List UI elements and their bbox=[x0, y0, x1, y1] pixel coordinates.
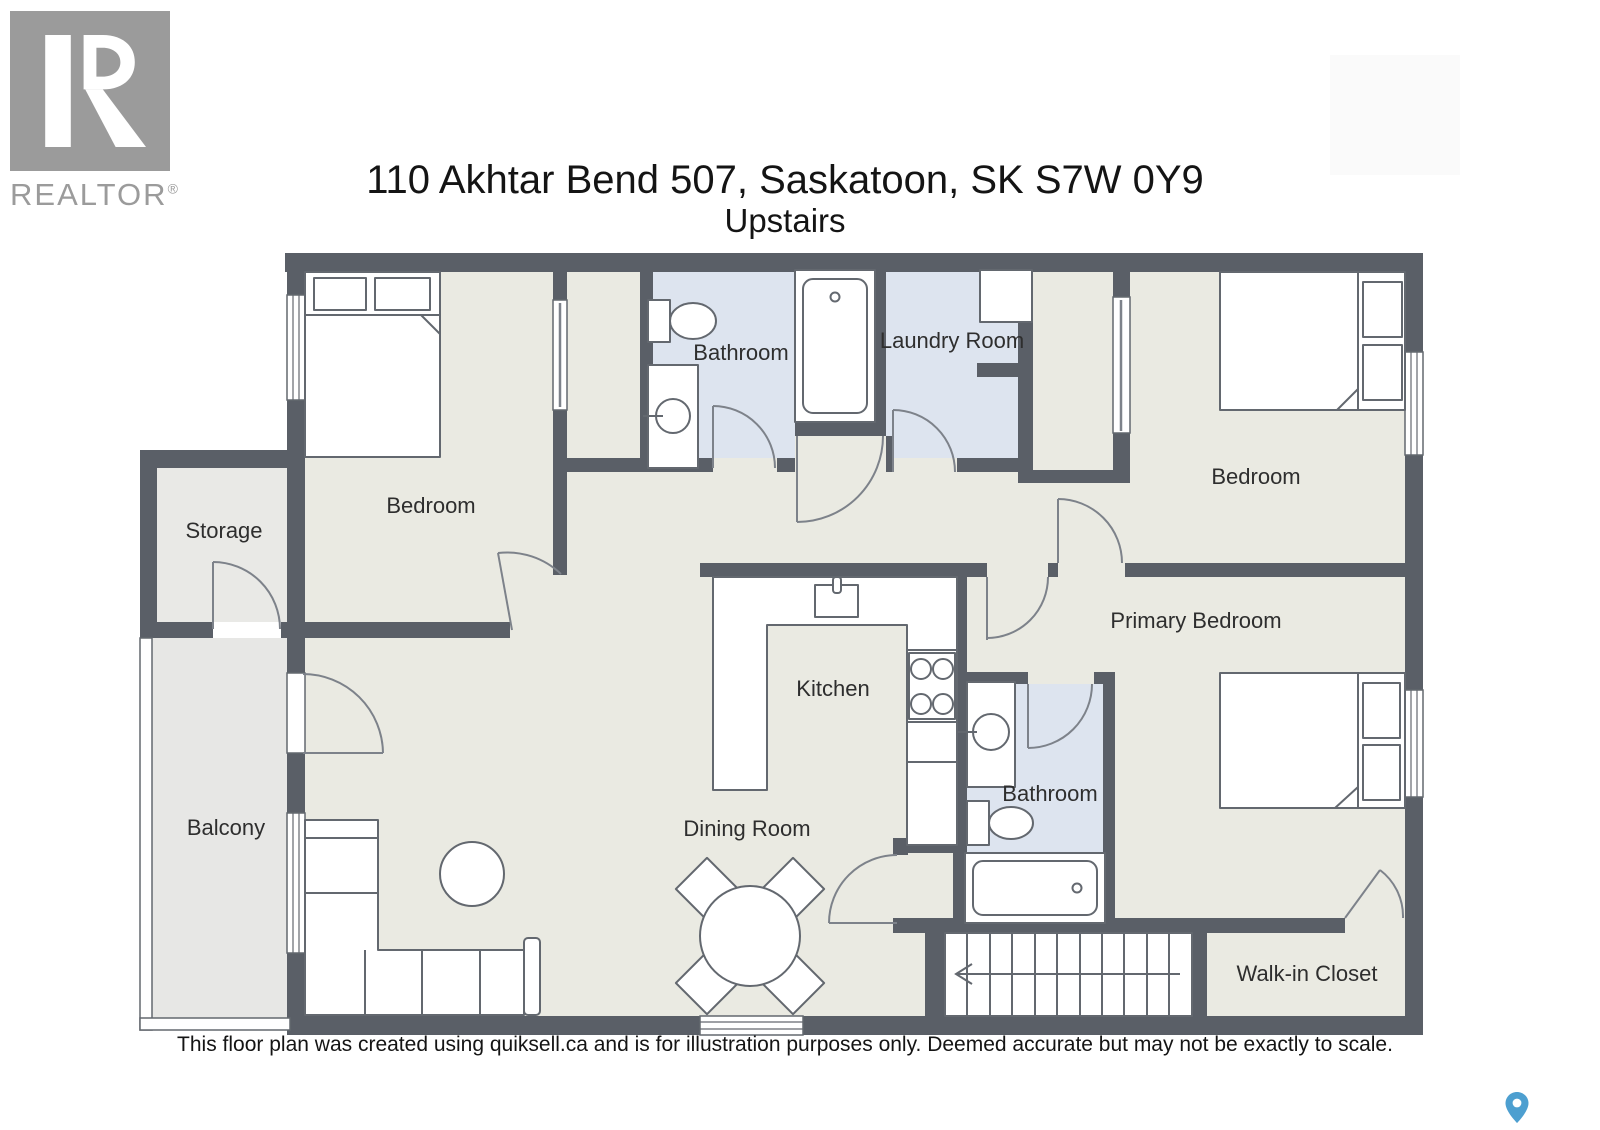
stairs bbox=[945, 933, 1192, 1016]
room-label-bathroom-2: Bathroom bbox=[1002, 781, 1097, 807]
bed bbox=[1220, 673, 1405, 808]
washer bbox=[980, 270, 1032, 322]
room-label-bedroom-2: Bedroom bbox=[1211, 464, 1300, 490]
room-label-dining-room: Dining Room bbox=[683, 816, 810, 842]
bed bbox=[1220, 272, 1405, 410]
room-label-bathroom-1: Bathroom bbox=[693, 340, 788, 366]
bathtub bbox=[795, 270, 875, 422]
stove bbox=[909, 653, 955, 719]
room-label-laundry-room: Laundry Room bbox=[880, 328, 1024, 354]
coffee-table bbox=[440, 842, 504, 906]
balcony-railing bbox=[140, 1018, 290, 1030]
room-label-balcony: Balcony bbox=[187, 815, 265, 841]
floor-plan-page: REALTOR® 110 Akhtar Bend 507, Saskatoon,… bbox=[0, 0, 1600, 1130]
room-label-bedroom-1: Bedroom bbox=[386, 493, 475, 519]
window bbox=[1405, 690, 1423, 797]
window bbox=[1405, 352, 1423, 455]
room-floor-storage bbox=[157, 468, 287, 622]
room-label-primary-bedroom: Primary Bedroom bbox=[1110, 608, 1281, 634]
balcony-railing bbox=[140, 638, 152, 1030]
map-pin-icon bbox=[1504, 1091, 1530, 1125]
bed bbox=[305, 272, 440, 457]
room-label-storage: Storage bbox=[185, 518, 262, 544]
disclaimer-text: This floor plan was created using quikse… bbox=[0, 1033, 1570, 1057]
room-label-walk-in-closet: Walk-in Closet bbox=[1237, 961, 1378, 987]
bathroom-sink bbox=[643, 365, 698, 468]
room-label-kitchen: Kitchen bbox=[796, 676, 869, 702]
toilet bbox=[648, 300, 716, 342]
bathtub bbox=[965, 853, 1105, 923]
window bbox=[287, 813, 305, 953]
window bbox=[287, 295, 305, 400]
